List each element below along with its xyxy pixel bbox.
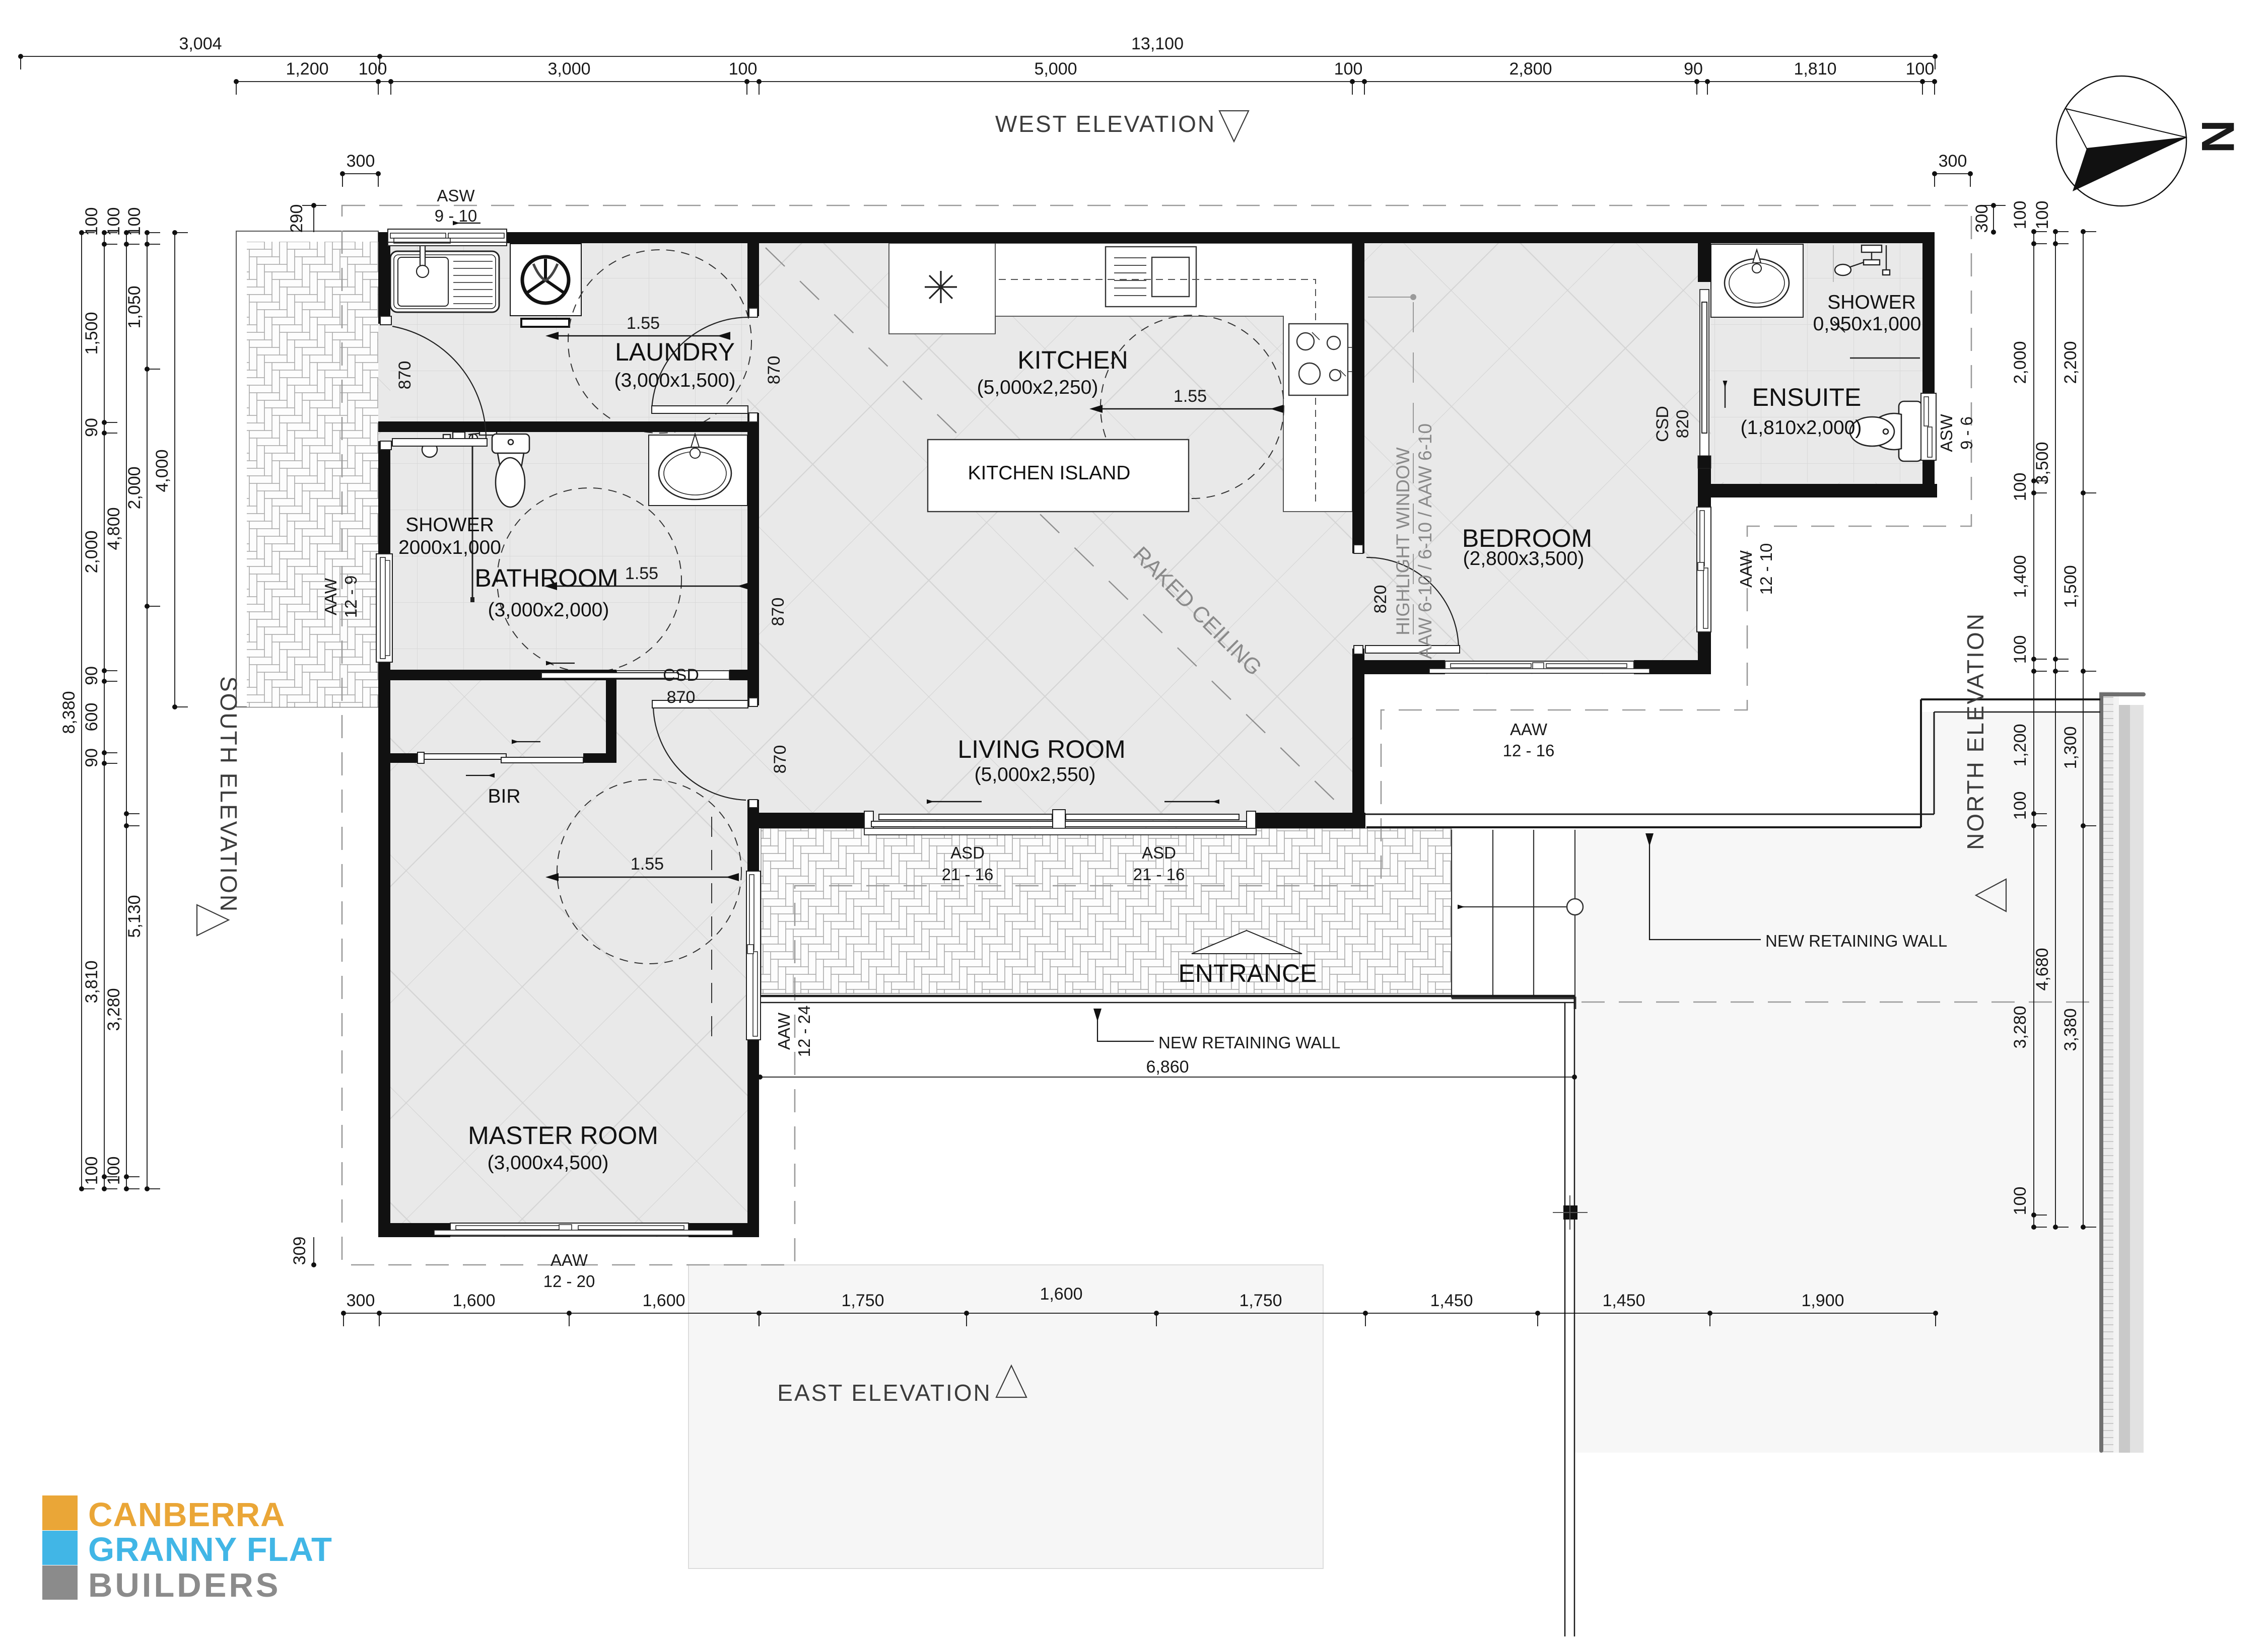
svg-text:3,000: 3,000 (547, 59, 590, 79)
svg-text:600: 600 (82, 703, 101, 732)
svg-text:100: 100 (359, 59, 387, 79)
svg-text:12 - 20: 12 - 20 (543, 1272, 595, 1291)
svg-text:5,000: 5,000 (1034, 59, 1077, 79)
svg-text:NORTH ELEVATION: NORTH ELEVATION (1962, 612, 1988, 850)
svg-text:MASTER ROOM: MASTER ROOM (468, 1121, 658, 1150)
svg-text:4,680: 4,680 (2033, 948, 2052, 990)
svg-text:3,380: 3,380 (2061, 1008, 2080, 1051)
svg-text:12 - 9: 12 - 9 (341, 576, 360, 618)
svg-text:100: 100 (104, 207, 123, 236)
svg-text:LAUNDRY: LAUNDRY (615, 338, 735, 366)
svg-text:ENSUITE: ENSUITE (1752, 383, 1862, 411)
svg-text:100: 100 (1334, 59, 1363, 79)
svg-text:8,380: 8,380 (59, 691, 79, 734)
svg-text:6,860: 6,860 (1146, 1057, 1189, 1077)
svg-text:100: 100 (2011, 1187, 2030, 1216)
svg-text:90: 90 (82, 666, 101, 685)
svg-text:1,750: 1,750 (1239, 1291, 1282, 1310)
svg-text:21 - 16: 21 - 16 (942, 865, 994, 884)
svg-text:300: 300 (347, 1291, 375, 1310)
svg-text:100: 100 (2011, 201, 2030, 230)
svg-text:100: 100 (1906, 59, 1935, 79)
svg-text:ASW: ASW (1937, 414, 1956, 452)
svg-text:AAW: AAW (1510, 720, 1548, 739)
svg-text:90: 90 (1684, 59, 1703, 79)
svg-text:(2,800x3,500): (2,800x3,500) (1463, 548, 1585, 569)
svg-text:100: 100 (104, 1157, 123, 1185)
svg-text:1.55: 1.55 (1174, 387, 1207, 406)
svg-text:N: N (2192, 120, 2243, 153)
svg-text:300: 300 (347, 152, 375, 171)
svg-text:1,900: 1,900 (1801, 1291, 1844, 1310)
svg-text:21 - 16: 21 - 16 (1133, 865, 1185, 884)
svg-text:870: 870 (395, 361, 415, 390)
svg-text:1,450: 1,450 (1430, 1291, 1473, 1310)
svg-text:BATHROOM: BATHROOM (474, 564, 618, 592)
svg-text:820: 820 (1371, 585, 1390, 614)
svg-text:AAW: AAW (551, 1251, 588, 1269)
svg-text:1,050: 1,050 (125, 285, 144, 328)
svg-text:9 - 10: 9 - 10 (435, 206, 477, 225)
svg-text:GRANNY FLAT: GRANNY FLAT (88, 1531, 332, 1568)
svg-text:CSD: CSD (663, 666, 699, 685)
svg-text:0,950x1,000: 0,950x1,000 (1813, 313, 1921, 335)
svg-text:870: 870 (771, 745, 790, 774)
svg-text:SHOWER: SHOWER (405, 514, 494, 536)
svg-text:2,200: 2,200 (2061, 341, 2080, 384)
svg-text:ASD: ASD (1142, 843, 1176, 862)
svg-text:1,200: 1,200 (2011, 724, 2030, 766)
svg-text:ENTRANCE: ENTRANCE (1178, 959, 1317, 987)
svg-text:870: 870 (667, 688, 696, 707)
svg-text:9 - 6: 9 - 6 (1957, 416, 1976, 450)
svg-text:1,600: 1,600 (452, 1291, 495, 1310)
svg-text:290: 290 (287, 204, 306, 233)
svg-text:4,000: 4,000 (153, 449, 172, 492)
svg-text:2000x1,000: 2000x1,000 (398, 537, 501, 558)
svg-text:1.55: 1.55 (631, 854, 664, 874)
svg-text:1,400: 1,400 (2011, 555, 2030, 598)
svg-text:AAW: AAW (321, 578, 340, 615)
svg-text:AAW: AAW (1737, 550, 1755, 588)
svg-text:2,000: 2,000 (2011, 341, 2030, 384)
svg-text:LIVING ROOM: LIVING ROOM (957, 735, 1125, 763)
svg-text:KITCHEN: KITCHEN (1017, 346, 1128, 374)
svg-text:300: 300 (1939, 152, 1967, 171)
svg-text:870: 870 (765, 356, 784, 385)
svg-text:100: 100 (2011, 792, 2030, 820)
svg-text:BIR: BIR (488, 786, 520, 807)
svg-text:1,600: 1,600 (642, 1291, 685, 1310)
svg-text:3,500: 3,500 (2033, 442, 2052, 484)
svg-text:13,100: 13,100 (1131, 34, 1184, 53)
svg-text:1,810: 1,810 (1794, 59, 1836, 79)
svg-text:12 - 16: 12 - 16 (1503, 741, 1555, 760)
svg-text:(5,000x2,250): (5,000x2,250) (977, 377, 1098, 398)
svg-text:100: 100 (2011, 635, 2030, 664)
svg-text:KITCHEN ISLAND: KITCHEN ISLAND (968, 462, 1131, 484)
svg-text:SHOWER: SHOWER (1827, 292, 1916, 313)
svg-text:(5,000x2,550): (5,000x2,550) (975, 764, 1096, 786)
svg-text:SOUTH ELEVATION: SOUTH ELEVATION (216, 676, 242, 913)
svg-text:1,500: 1,500 (82, 312, 101, 354)
svg-text:(3,000x2,000): (3,000x2,000) (488, 599, 609, 621)
svg-text:CSD: CSD (1653, 406, 1672, 442)
svg-text:1,750: 1,750 (841, 1291, 884, 1310)
svg-text:2,800: 2,800 (1509, 59, 1552, 79)
svg-text:90: 90 (82, 418, 101, 437)
svg-text:NEW RETAINING WALL: NEW RETAINING WALL (1765, 932, 1947, 950)
svg-text:ASD: ASD (950, 843, 985, 862)
svg-text:NEW RETAINING WALL: NEW RETAINING WALL (1158, 1033, 1340, 1052)
svg-text:AAW: AAW (775, 1012, 793, 1050)
svg-text:100: 100 (729, 59, 758, 79)
svg-text:CANBERRA: CANBERRA (88, 1496, 285, 1534)
svg-text:5,130: 5,130 (125, 895, 144, 938)
svg-text:1,200: 1,200 (286, 59, 328, 79)
svg-text:3,004: 3,004 (179, 34, 222, 53)
svg-text:300: 300 (1972, 204, 1991, 233)
svg-text:870: 870 (769, 598, 788, 626)
svg-text:3,280: 3,280 (104, 988, 123, 1031)
svg-text:2,000: 2,000 (82, 530, 101, 573)
svg-text:820: 820 (1673, 410, 1692, 439)
svg-text:1,600: 1,600 (1040, 1284, 1082, 1304)
svg-text:309: 309 (290, 1237, 309, 1265)
svg-text:BUILDERS: BUILDERS (88, 1566, 281, 1604)
svg-text:2,000: 2,000 (125, 466, 144, 509)
svg-text:ASW: ASW (437, 186, 475, 205)
svg-text:100: 100 (82, 207, 101, 236)
svg-text:1,300: 1,300 (2061, 726, 2080, 769)
svg-text:12 - 10: 12 - 10 (1757, 543, 1775, 595)
svg-text:3,810: 3,810 (82, 960, 101, 1003)
svg-text:12 - 24: 12 - 24 (795, 1006, 813, 1057)
svg-text:4,800: 4,800 (104, 507, 123, 550)
svg-text:(3,000x4,500): (3,000x4,500) (488, 1152, 609, 1174)
svg-text:3,280: 3,280 (2011, 1006, 2030, 1048)
svg-text:AAW 6-10 / 6-10 / AAW 6-10: AAW 6-10 / 6-10 / AAW 6-10 (1415, 423, 1435, 659)
svg-text:100: 100 (82, 1157, 101, 1185)
svg-text:100: 100 (2011, 473, 2030, 502)
svg-text:WEST ELEVATION: WEST ELEVATION (995, 111, 1216, 137)
svg-text:100: 100 (125, 207, 144, 236)
svg-text:100: 100 (2033, 201, 2052, 230)
svg-text:1.55: 1.55 (627, 314, 660, 333)
svg-text:(3,000x1,500): (3,000x1,500) (614, 370, 736, 391)
svg-text:1.55: 1.55 (625, 564, 658, 583)
svg-text:90: 90 (82, 748, 101, 767)
svg-text:1,500: 1,500 (2061, 565, 2080, 608)
svg-text:EAST ELEVATION: EAST ELEVATION (777, 1380, 991, 1406)
svg-text:1,450: 1,450 (1602, 1291, 1645, 1310)
svg-text:(1,810x2,000): (1,810x2,000) (1741, 417, 1862, 439)
svg-text:HIGHLIGHT WINDOW: HIGHLIGHT WINDOW (1393, 447, 1413, 635)
